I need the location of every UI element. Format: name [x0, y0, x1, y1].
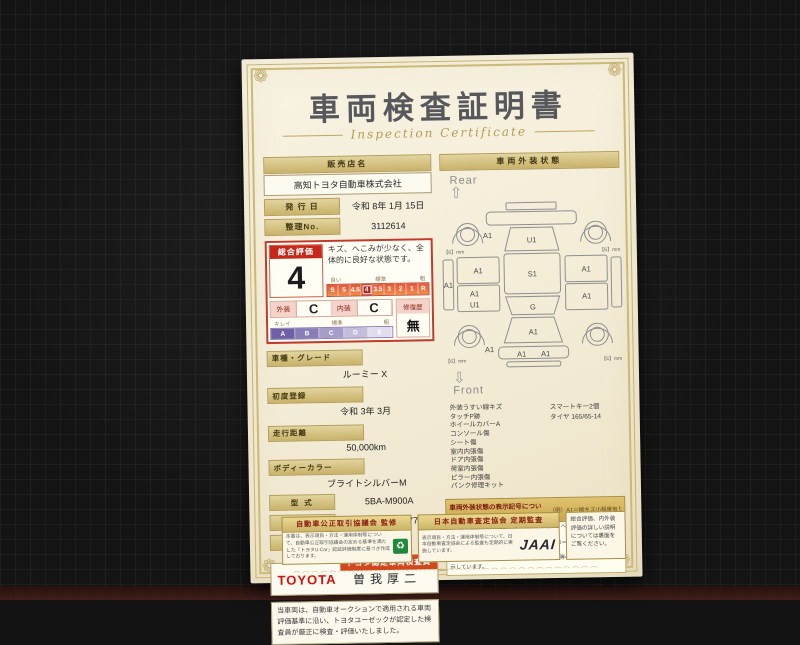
grade-cell: D [344, 327, 368, 337]
damage-code-label: U1 [470, 300, 480, 309]
divider [283, 134, 343, 136]
scale-cell: 5 [339, 285, 351, 296]
issue-date-row: 発 行 日 令和 8年 1月 15日 [264, 196, 432, 216]
condition-item: パンク修理キット [451, 482, 541, 492]
grade-hint: キレイ [274, 320, 291, 328]
inspection-certificate-sheet: ❁ ❁ ❁ ❁ 車両検査証明書 Inspection Certificate 販… [241, 53, 642, 584]
damage-code-label: A1 [529, 327, 538, 336]
spec-field: 車種・グレードルーミー X [266, 345, 435, 381]
grade-cell: E [368, 327, 392, 337]
repair-history-value: 無 [397, 313, 429, 337]
interior-grade: C [357, 300, 392, 316]
ref-no-label: 整理No. [264, 218, 340, 236]
spec-field-label: 車種・グレード [267, 349, 363, 367]
damage-code-label: U1 [527, 235, 537, 244]
equipment-item: タイヤ 165/65-14 [550, 412, 624, 423]
overall-rating-panel: 総合評価 4 キズ、へこみが少なく、全体的に良好な状態です。 良い標準粗 S54… [265, 238, 435, 344]
scale-cell: S [327, 285, 339, 296]
green-certification-icon: ♻ [393, 539, 408, 554]
scale-cell: 3.5 [373, 284, 385, 295]
issue-date-value: 令和 8年 1月 15日 [344, 198, 432, 213]
damage-code-label: A1 [581, 264, 590, 273]
scale-cell: 3 [384, 284, 396, 295]
jaai-audit-banner: 日本自動車査定協会 定期監査 表示項目・方法・運用体制等について、日本自動車査定… [417, 512, 560, 562]
grade-cell: A [271, 329, 295, 339]
damage-code-label: A1 [517, 350, 526, 359]
rating-score-box: 総合評価 4 [269, 244, 324, 298]
jaai-audit-text: 表示項目・方法・運用体制等について、日本自動車査定協会による監査も定期的に実施し… [422, 534, 517, 556]
scale-cell: 4.5 [350, 284, 362, 295]
ref-no-value: 3112614 [344, 220, 432, 232]
tire-depth-mark: 【6】mm [599, 247, 620, 253]
spec-field-label: 走行距離 [268, 424, 364, 442]
jaai-logo: JAAI [519, 536, 556, 553]
toyota-logo: TOYOTA [277, 572, 336, 588]
vehicle-spec-fields: 車種・グレードルーミー X初度登録令和 3年 3月走行距離50,000kmボディ… [266, 345, 436, 491]
tire-depth-mark: 【6】mm [601, 356, 622, 362]
tire-depth-mark: 【6】mm [445, 359, 466, 365]
damage-code-label: A1 [474, 266, 483, 275]
tire-depth-mark: 【6】mm [443, 250, 464, 256]
grade-cell: C [320, 328, 344, 338]
spec-field-label: 初度登録 [267, 386, 363, 404]
exterior-grade: C [297, 301, 332, 317]
condition-item-lists: 外装うすい線キズタッチP跡ホイールカバーAコンソール傷シート傷室内内張傷ドア内張… [444, 402, 625, 492]
damage-code-label: A1 [483, 231, 492, 240]
spec-field: 走行距離50,000km [268, 420, 437, 453]
scale-cell: R [418, 283, 429, 294]
vehicle-damage-diagram: A1U1S1A1A1U1A1A1A1GA1A1A1A1【6】mm【6】mm【6】… [440, 199, 625, 370]
divider [535, 130, 595, 132]
grade-scale-bar: ABCDE [270, 326, 393, 340]
damage-code-label: S1 [528, 269, 537, 278]
spec-field-value: ルーミー X [267, 364, 435, 382]
ref-no-row: 整理No. 3112614 [264, 216, 432, 236]
damage-code-label: A1 [470, 289, 479, 298]
front-direction: ⇩ Front [443, 369, 623, 397]
scale-hint: 良い [330, 276, 341, 284]
condition-items-right: スマートキー2個タイヤ 165/65-14 [544, 402, 625, 490]
id-field-label: 型 式 [269, 494, 335, 511]
fair-trade-council-text: 本書は、表示項目・方法・運用体制等について、自動車公正取引協議会の定める基準を満… [286, 533, 390, 562]
scale-hint: 粗 [420, 274, 426, 282]
grade-hint: 粗 [383, 318, 389, 326]
dealer-value: 高知トヨタ自動車株式会社 [263, 172, 431, 196]
grade-hint: 標準 [331, 319, 342, 327]
see-reverse-note: 総合評価、内外装評価の詳しい説明については裏面をご覧ください。 [565, 511, 626, 560]
certification-note: 当車両は、自動車オークションで適用される車両評価基準に沿い、トヨタユーゼックが認… [271, 599, 440, 644]
rating-scale-bar: S54.543.5321R [326, 282, 429, 297]
rating-header: 総合評価 [270, 245, 322, 259]
scale-cell: 2 [395, 284, 407, 295]
scale-cell: 4 [361, 284, 373, 295]
front-label: Front [453, 382, 623, 397]
damage-code-label: G [530, 302, 536, 311]
damage-code-label: A1 [485, 345, 494, 354]
rear-direction: Rear ⇧ [440, 172, 620, 200]
damage-code-label: A1 [541, 349, 550, 358]
spec-field: 初度登録令和 3年 3月 [267, 383, 436, 419]
grade-cell: B [295, 328, 319, 338]
exterior-interior-grades: 外装 C 内装 C [270, 299, 393, 318]
scale-cell: 1 [407, 283, 419, 294]
id-field: 型 式5BA-M900A [269, 492, 437, 511]
rating-score: 4 [270, 258, 323, 297]
fair-trade-council-banner: 自動車公正取引協議会 監修 本書は、表示項目・方法・運用体制等について、自動車公… [281, 515, 412, 565]
spec-field-label: ボディーカラー [268, 458, 364, 476]
interior-label: 内装 [331, 300, 357, 315]
exterior-label: 外装 [271, 302, 297, 317]
rating-comment: キズ、へこみが少なく、全体的に良好な状態です。 [326, 242, 429, 267]
spec-field: ボディーカラーブライトシルバーM [268, 455, 437, 491]
certificate-subtitle: Inspection Certificate [351, 124, 528, 141]
scale-hint: 標準 [375, 275, 386, 283]
id-field-value: 5BA-M900A [341, 495, 437, 507]
issue-date-label: 発 行 日 [264, 198, 340, 216]
damage-code-label: A1 [444, 281, 453, 290]
repair-history-label: 修復歴 [397, 299, 429, 314]
exterior-condition-header: 車両外装状態 [439, 151, 619, 171]
spec-field-value: 令和 3年 3月 [267, 401, 435, 419]
damage-code-label: A1 [582, 291, 591, 300]
dealer-label: 販売店名 [263, 154, 431, 174]
repair-history-box: 修復歴 無 [396, 298, 431, 338]
footer-strip: 自動車公正取引協議会 監修 本書は、表示項目・方法・運用体制等について、自動車公… [281, 511, 626, 565]
spec-field-value: ブライトシルバーM [269, 473, 437, 491]
condition-items-left: 外装うすい線キズタッチP跡ホイールカバーAコンソール傷シート傷室内内張傷ドア内張… [444, 403, 542, 492]
